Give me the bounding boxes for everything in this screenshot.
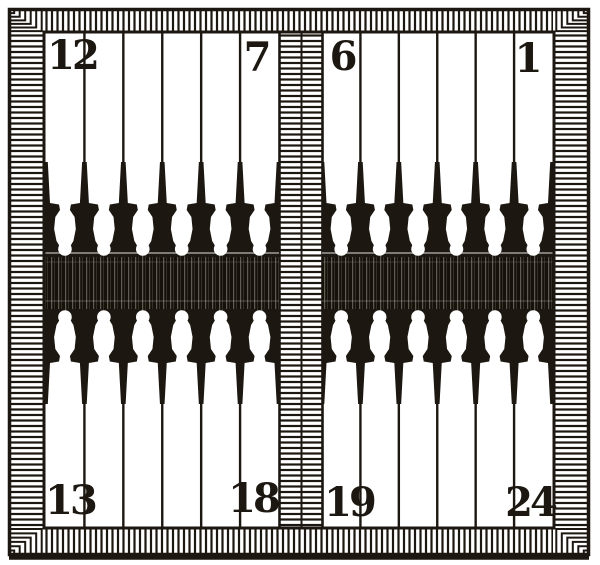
point-number-18: 18 xyxy=(228,479,278,519)
engraving-plate: 12 7 6 1 13 18 19 24 xyxy=(0,0,600,565)
point-number-19: 19 xyxy=(324,483,374,523)
point-number-13: 13 xyxy=(45,481,95,521)
point-number-24: 24 xyxy=(505,483,555,523)
center-bar xyxy=(280,32,323,528)
point-number-6: 6 xyxy=(330,37,355,77)
point-number-1: 1 xyxy=(515,39,540,79)
point-number-7: 7 xyxy=(244,38,269,78)
point-number-12: 12 xyxy=(47,36,97,76)
